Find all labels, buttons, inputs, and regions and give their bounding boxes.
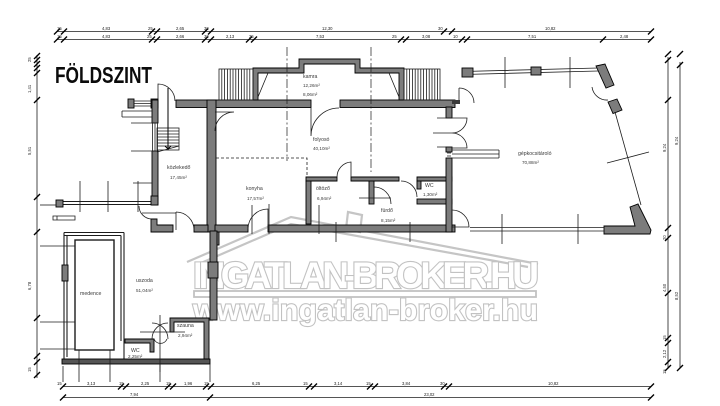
svg-text:25: 25 [147,34,152,39]
svg-text:1,96: 1,96 [184,381,193,386]
svg-text:15: 15 [57,34,62,39]
svg-text:4,50: 4,50 [662,283,667,292]
svg-text:9,24: 9,24 [674,136,679,145]
svg-text:fürdő: fürdő [381,208,393,214]
svg-text:7,51: 7,51 [528,34,537,39]
svg-text:15: 15 [366,381,371,386]
svg-text:szauna: szauna [177,323,194,329]
svg-text:2,25m²: 2,25m² [128,354,143,359]
svg-text:30: 30 [204,34,209,39]
svg-text:4,83: 4,83 [102,26,111,31]
svg-text:gépkocsitároló: gépkocsitároló [518,151,552,157]
svg-text:15: 15 [57,26,62,31]
svg-text:3,13: 3,13 [87,381,96,386]
svg-text:2,12: 2,12 [662,349,667,358]
svg-text:5,51: 5,51 [27,146,32,155]
svg-text:közlekedő: közlekedő [167,165,190,171]
svg-text:2,66: 2,66 [176,34,185,39]
svg-text:2,94m²: 2,94m² [178,333,193,338]
svg-text:uszoda: uszoda [136,278,153,284]
svg-text:2,48: 2,48 [620,34,629,39]
svg-text:INGATLAN-BROKER.HU: INGATLAN-BROKER.HU [193,255,538,296]
svg-text:15: 15 [204,381,209,386]
svg-text:7,53: 7,53 [316,34,325,39]
svg-text:2,65: 2,65 [176,26,185,31]
svg-text:25: 25 [148,26,153,31]
svg-text:2,25: 2,25 [141,381,150,386]
svg-text:öltöző: öltöző [316,186,330,192]
svg-text:9,24: 9,24 [662,143,667,152]
svg-text:8,15m²: 8,15m² [381,218,396,223]
svg-text:30: 30 [204,26,209,31]
svg-text:6,78: 6,78 [27,281,32,290]
svg-text:3,14: 3,14 [334,381,343,386]
svg-text:2,13: 2,13 [226,34,235,39]
svg-text:15: 15 [27,367,32,372]
svg-text:konyha: konyha [246,186,263,192]
svg-text:15: 15 [57,381,62,386]
svg-text:6,25: 6,25 [252,381,261,386]
svg-text:10: 10 [453,34,458,39]
svg-text:8,06m²: 8,06m² [303,92,318,97]
svg-text:kamra: kamra [303,74,318,80]
svg-text:10,82: 10,82 [548,381,559,386]
svg-text:25: 25 [249,34,254,39]
svg-text:30: 30 [440,381,445,386]
svg-text:40,10m²: 40,10m² [313,146,330,151]
svg-text:51,04m²: 51,04m² [136,288,153,293]
svg-text:20: 20 [662,235,667,240]
svg-text:6,94m²: 6,94m² [317,196,332,201]
svg-text:1,30m²: 1,30m² [423,192,438,197]
svg-text:17,45m²: 17,45m² [170,175,187,180]
svg-text:medence: medence [80,291,101,297]
svg-text:www.ingatlan-broker.hu: www.ingatlan-broker.hu [192,294,537,327]
svg-text:70,88m²: 70,88m² [522,160,539,165]
svg-text:15: 15 [662,369,667,374]
svg-text:15: 15 [662,335,667,340]
svg-text:23,02: 23,02 [424,392,435,397]
svg-text:12,26m²: 12,26m² [303,83,320,88]
svg-text:30: 30 [438,26,443,31]
svg-text:folyosó: folyosó [313,137,330,143]
svg-text:10,82: 10,82 [545,26,556,31]
svg-text:25: 25 [27,57,32,62]
svg-text:1,41: 1,41 [27,84,32,93]
svg-text:4,83: 4,83 [102,34,111,39]
svg-text:15: 15 [166,381,171,386]
svg-text:WC: WC [425,183,434,189]
svg-text:3,08: 3,08 [422,34,431,39]
svg-text:3,84: 3,84 [402,381,411,386]
svg-text:15: 15 [303,381,308,386]
svg-text:7,94: 7,94 [130,392,139,397]
svg-text:15: 15 [119,381,124,386]
svg-text:FÖLDSZINT: FÖLDSZINT [55,62,152,88]
svg-text:17,57m²: 17,57m² [247,196,264,201]
svg-text:8,52: 8,52 [674,291,679,300]
svg-text:12,30: 12,30 [322,26,333,31]
svg-text:25: 25 [392,34,397,39]
